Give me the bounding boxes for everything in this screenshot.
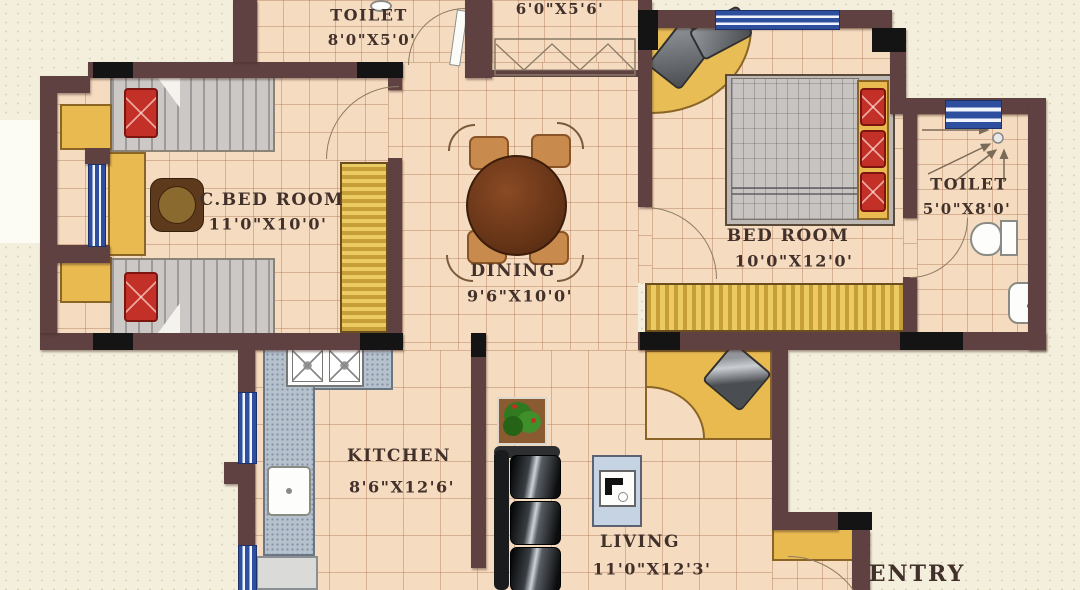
wall: [88, 62, 403, 78]
sofa-back: [494, 450, 509, 590]
window: [238, 392, 257, 464]
wall: [388, 158, 402, 345]
room-dims-dress: 6'0"X5'6': [516, 0, 604, 18]
room-dims-toilet-right: 5'0"X8'0': [923, 200, 1011, 218]
wall: [238, 350, 255, 392]
wall: [471, 333, 486, 568]
plant-flower: [512, 404, 517, 409]
window: [238, 545, 257, 590]
bed-pillow: [124, 88, 158, 138]
wall: [903, 112, 917, 218]
dressing-stool-seat: [158, 186, 196, 224]
nightstand: [60, 104, 112, 150]
window: [945, 100, 1002, 129]
room-dims-bedroom: 10'0"X12'0': [735, 252, 854, 271]
wardrobe-cbedroom: [340, 162, 388, 333]
blanket-fold: [158, 303, 180, 333]
room-label-toilet-right: TOILET: [930, 175, 1008, 194]
room-label-dining: DINING: [470, 261, 555, 281]
floor-plan: TOILET 8'0"X5'0' 6'0"X5'6' C.BED ROOM 11…: [0, 0, 1080, 590]
sofa-cushion: [510, 455, 561, 499]
wardrobe-bedroom: [645, 283, 905, 332]
entry-label: ENTRY: [869, 561, 966, 587]
wall-opening: [900, 332, 963, 350]
window: [88, 164, 106, 247]
wall: [238, 484, 255, 545]
room-dims-cbedroom: 11'0"X10'0': [209, 215, 328, 234]
wall-opening: [93, 62, 133, 78]
sink-drain: [286, 488, 292, 494]
room-label-kitchen: KITCHEN: [347, 446, 451, 466]
wall-opening: [471, 333, 486, 357]
closet-zigzag-icon: [494, 38, 636, 76]
tv-screen: [605, 478, 612, 495]
plant-flower: [531, 418, 536, 423]
wall-opening: [638, 10, 658, 50]
wall: [465, 0, 492, 78]
wall-opening: [357, 62, 403, 78]
bed-pillow: [860, 130, 886, 168]
wall: [772, 350, 788, 515]
room-dims-dining: 9'6"X10'0': [467, 287, 573, 306]
entry-step: [772, 528, 854, 561]
dining-table: [466, 155, 567, 256]
light-shaft: [0, 120, 40, 243]
wall: [40, 245, 110, 263]
room-label-living: LIVING: [600, 532, 680, 552]
bed-pillow: [124, 272, 158, 322]
wall-opening: [872, 28, 906, 52]
wall-opening: [360, 333, 403, 350]
wall: [772, 512, 838, 530]
sofa-cushion: [510, 501, 561, 545]
sofa-cushion: [510, 547, 561, 590]
wall-opening: [640, 332, 680, 350]
wall: [903, 277, 917, 333]
stove-burner: [292, 349, 323, 382]
wall: [85, 148, 110, 164]
wall-opening: [838, 512, 872, 530]
wall: [40, 263, 57, 333]
room-dims-living: 11'0"X12'3': [593, 560, 712, 579]
room-dims-toilet-left: 8'0"X5'0': [328, 31, 416, 49]
room-label-bedroom: BED ROOM: [727, 226, 850, 246]
wall-opening: [93, 333, 133, 350]
wall: [1028, 98, 1046, 350]
window: [715, 10, 840, 30]
plant-foliage: [503, 416, 523, 436]
stove-burner: [329, 349, 360, 382]
room-label-toilet-left: TOILET: [330, 6, 408, 25]
wc-tank: [1000, 220, 1018, 256]
wall: [233, 0, 257, 62]
double-bed-mattress: [731, 78, 859, 220]
wall: [638, 332, 1046, 350]
wall: [40, 76, 90, 93]
bed-pillow: [860, 88, 886, 126]
bed-pillow: [860, 172, 886, 212]
kitchen-slab: [256, 556, 318, 590]
wc-bowl: [970, 222, 1002, 256]
blanket-fold: [158, 78, 180, 108]
room-dims-kitchen: 8'6"X12'6': [349, 478, 455, 497]
room-label-cbedroom: C.BED ROOM: [200, 190, 345, 210]
wall: [40, 93, 57, 263]
wall: [852, 530, 870, 590]
wall: [224, 462, 255, 484]
tv-knob: [618, 492, 628, 502]
dressing-table: [108, 152, 146, 256]
nightstand: [60, 257, 112, 303]
